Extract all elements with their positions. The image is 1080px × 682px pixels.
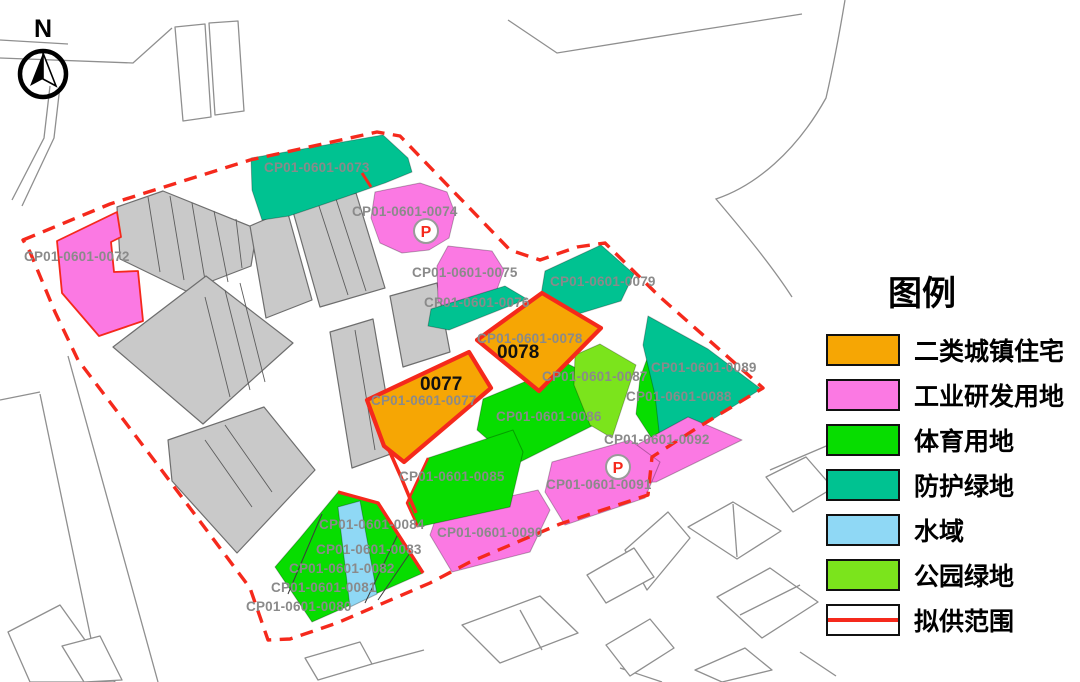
planning-map-page: P P CP01-0601-0072 CP01-0601-0073 CP01-0… (0, 0, 1080, 682)
label-0092: CP01-0601-0092 (604, 432, 710, 447)
legend-title: 图例 (888, 266, 1080, 315)
label-0075: CP01-0601-0075 (412, 265, 518, 280)
parking-icon-0091: P (606, 455, 630, 479)
label-0080: CP01-0601-0080 (246, 599, 352, 614)
legend-item-water: 水域 (826, 515, 1080, 545)
legend-item-protective-green: 防护绿地 (826, 470, 1080, 500)
label-0082: CP01-0601-0082 (289, 561, 395, 576)
parking-letter: P (421, 224, 432, 241)
north-arrow: N (12, 16, 74, 109)
label-0084: CP01-0601-0084 (319, 517, 425, 532)
legend-item-park-green: 公园绿地 (826, 560, 1080, 590)
label-0086: CP01-0601-0086 (496, 409, 602, 424)
label-0089: CP01-0601-0089 (651, 360, 757, 375)
label-0090: CP01-0601-0090 (437, 525, 543, 540)
label-0091: CP01-0601-0091 (546, 477, 652, 492)
legend-swatch-lime (826, 559, 900, 591)
parking-icon-0074: P (414, 219, 438, 243)
legend-item-residential: 二类城镇住宅 (826, 335, 1080, 365)
label-0073: CP01-0601-0073 (264, 160, 370, 175)
legend-swatch-water (826, 514, 900, 546)
legend-item-sports: 体育用地 (826, 425, 1080, 455)
label-0079: CP01-0601-0079 (550, 274, 656, 289)
highlight-label-0078: 0078 (497, 342, 539, 363)
legend-swatch-teal (826, 469, 900, 501)
legend-swatch-orange (826, 334, 900, 366)
label-0077-code: CP01-0601-0077 (371, 393, 477, 408)
label-0074: CP01-0601-0074 (352, 204, 458, 219)
legend-swatch-green (826, 424, 900, 456)
legend-item-supply-scope: 拟供范围 (826, 605, 1080, 635)
parking-letter: P (613, 460, 624, 477)
label-0088: CP01-0601-0088 (626, 389, 732, 404)
legend-swatch-pink (826, 379, 900, 411)
label-0087: CP01-0601-0087 (542, 369, 648, 384)
compass-icon (12, 42, 74, 104)
legend-item-industrial-rd: 工业研发用地 (826, 380, 1080, 410)
north-label: N (12, 16, 74, 42)
label-0072: CP01-0601-0072 (24, 249, 130, 264)
legend: 图例 二类城镇住宅 工业研发用地 体育用地 防护绿地 水域 公园绿地 拟供范围 (826, 266, 1080, 650)
label-0076: CP01-0601-0076 (424, 295, 530, 310)
highlight-label-0077: 0077 (420, 374, 462, 395)
label-0081: CP01-0601-0081 (271, 580, 377, 595)
label-0085: CP01-0601-0085 (399, 469, 505, 484)
legend-swatch-supply-scope (826, 604, 900, 636)
label-0083: CP01-0601-0083 (316, 542, 422, 557)
